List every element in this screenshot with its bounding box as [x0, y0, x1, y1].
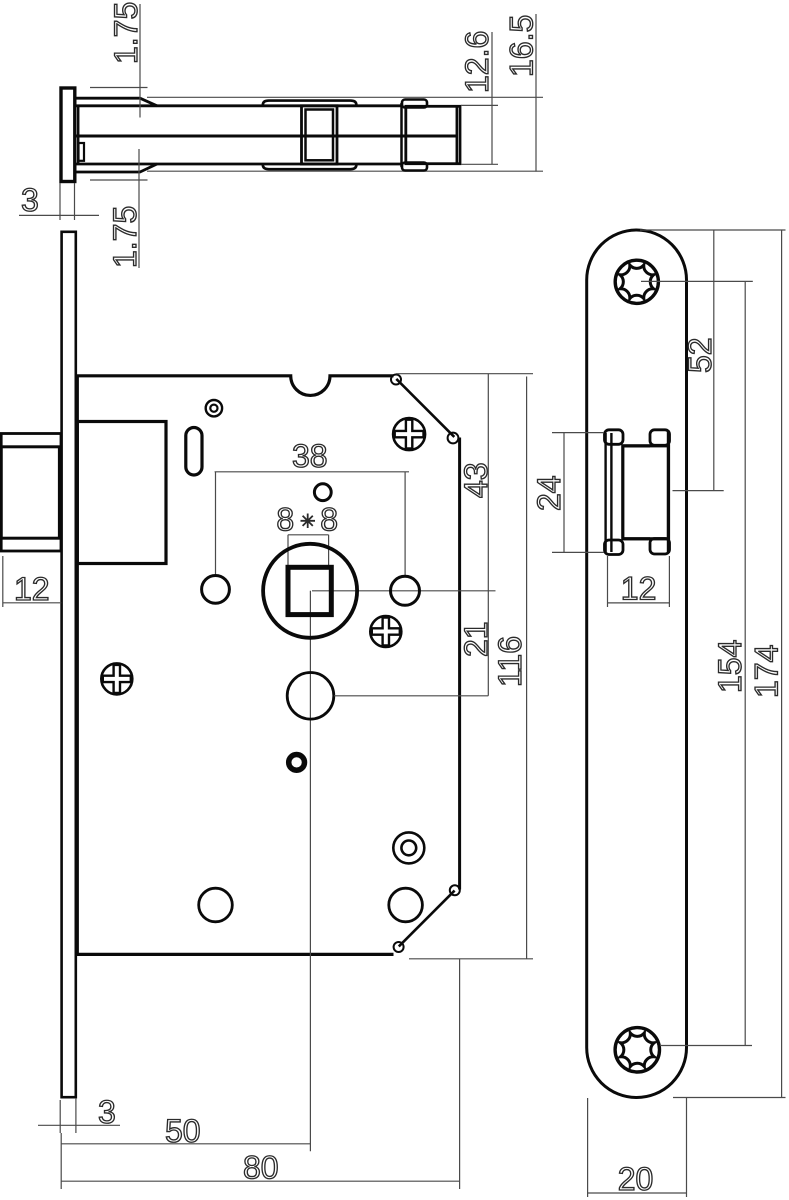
svg-text:16.5: 16.5 [504, 15, 540, 77]
svg-text:1.75: 1.75 [108, 2, 144, 64]
svg-text:80: 80 [243, 1150, 279, 1186]
svg-text:8: 8 [276, 502, 294, 538]
svg-text:21: 21 [458, 621, 494, 657]
svg-text:43: 43 [458, 462, 494, 498]
svg-text:3: 3 [98, 1094, 116, 1130]
svg-text:174: 174 [749, 645, 785, 698]
svg-text:3: 3 [21, 182, 39, 218]
svg-text:12: 12 [14, 571, 50, 607]
svg-text:38: 38 [292, 438, 328, 474]
svg-text:12: 12 [621, 571, 657, 607]
svg-text:154: 154 [712, 640, 748, 693]
svg-text:116: 116 [492, 636, 528, 687]
svg-text:1.75: 1.75 [107, 206, 143, 268]
svg-text:8: 8 [320, 502, 338, 538]
svg-text:24: 24 [531, 475, 567, 511]
svg-text:12.6: 12.6 [459, 31, 495, 93]
svg-text:20: 20 [618, 1161, 654, 1197]
svg-text:50: 50 [165, 1113, 201, 1149]
svg-text:52: 52 [682, 337, 718, 373]
